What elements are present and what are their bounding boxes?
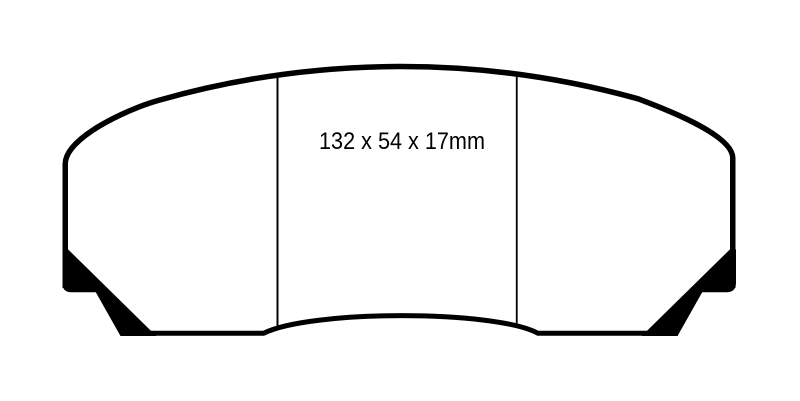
svg-text:132 x 54 x 17mm: 132 x 54 x 17mm bbox=[319, 128, 485, 155]
